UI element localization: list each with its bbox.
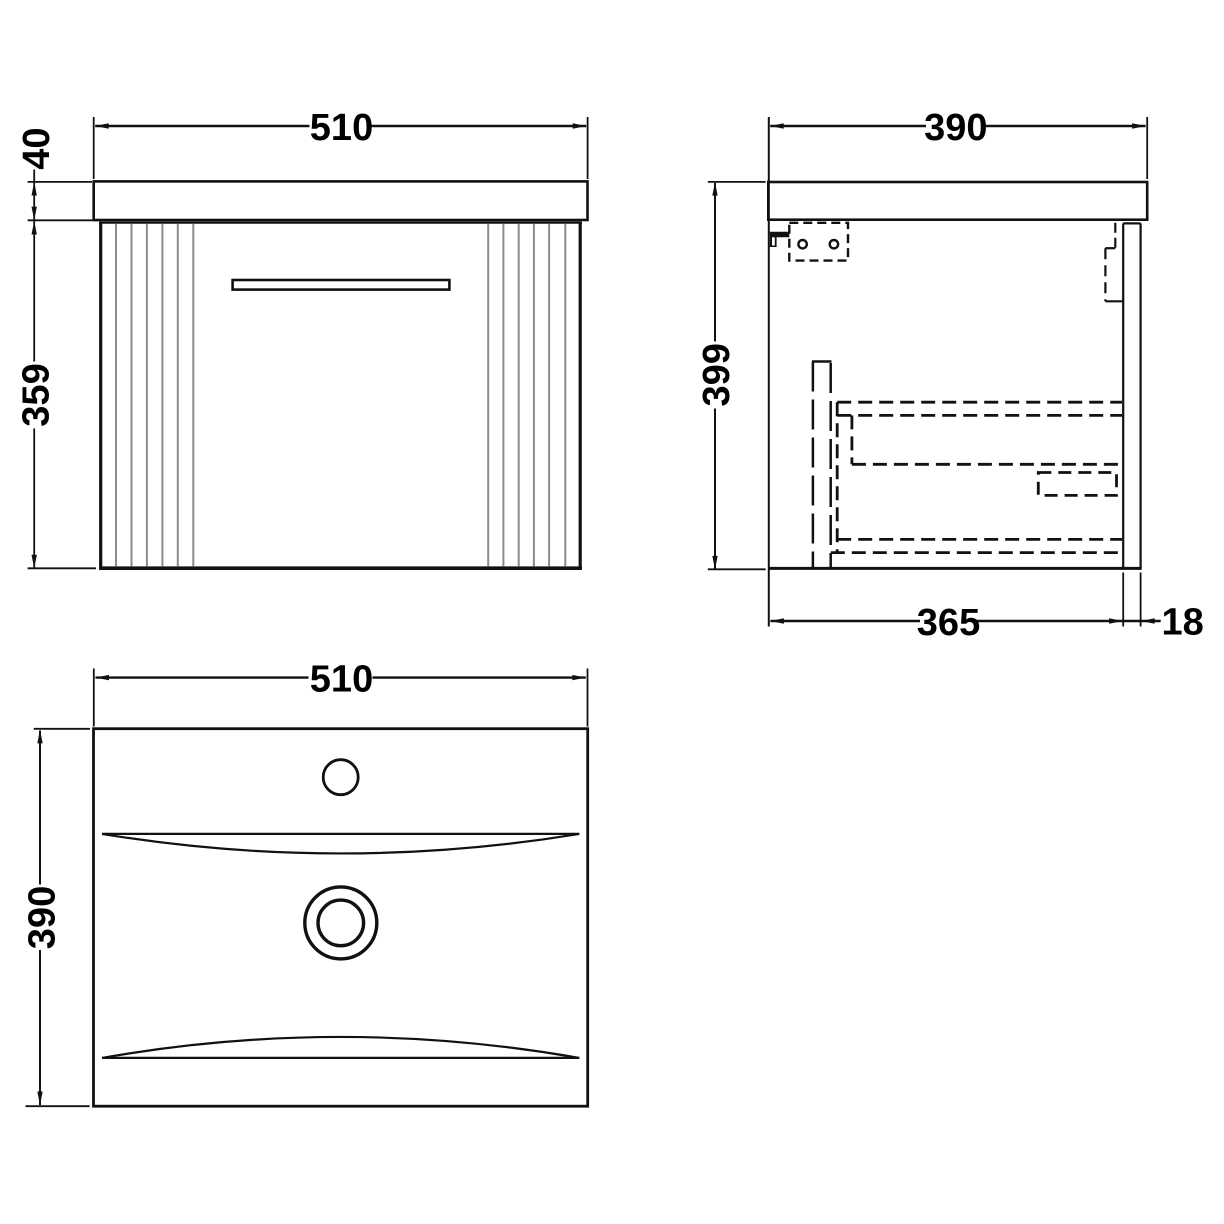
svg-text:390: 390 xyxy=(22,886,64,949)
svg-text:510: 510 xyxy=(310,107,373,149)
svg-text:510: 510 xyxy=(310,658,373,700)
svg-text:40: 40 xyxy=(16,127,58,169)
svg-text:365: 365 xyxy=(917,602,980,644)
svg-text:399: 399 xyxy=(696,343,738,406)
svg-text:359: 359 xyxy=(16,363,58,426)
svg-text:18: 18 xyxy=(1162,602,1204,644)
svg-text:390: 390 xyxy=(924,107,987,149)
